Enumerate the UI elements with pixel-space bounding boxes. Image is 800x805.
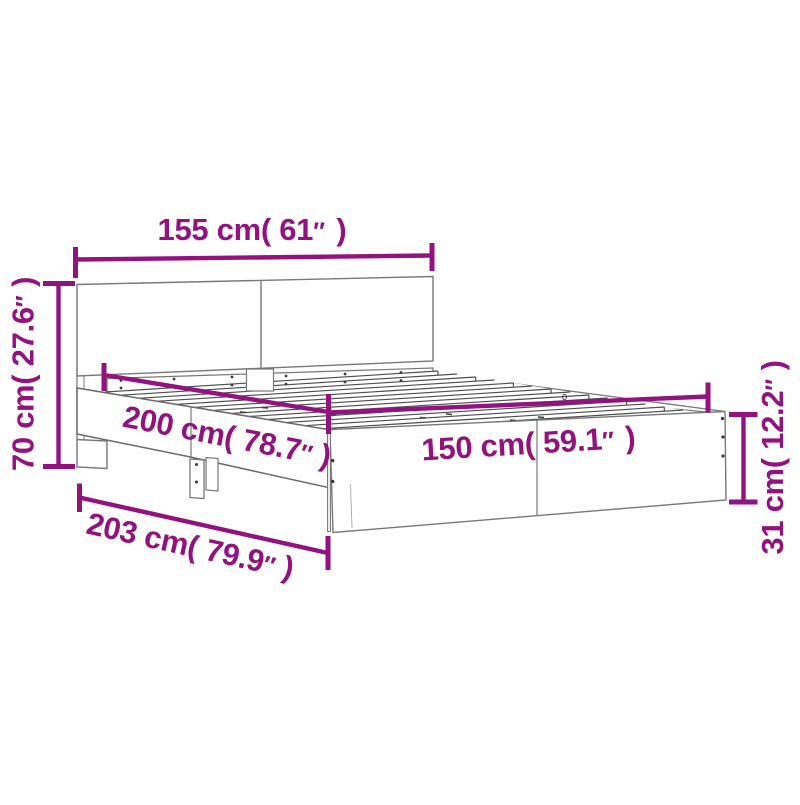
svg-text:70 cm( 27.6″ ): 70 cm( 27.6″ )	[6, 277, 41, 471]
svg-text:31 cm( 12.2″ ): 31 cm( 12.2″ )	[755, 360, 790, 554]
svg-text:155 cm( 61″ ): 155 cm( 61″ )	[158, 212, 347, 247]
